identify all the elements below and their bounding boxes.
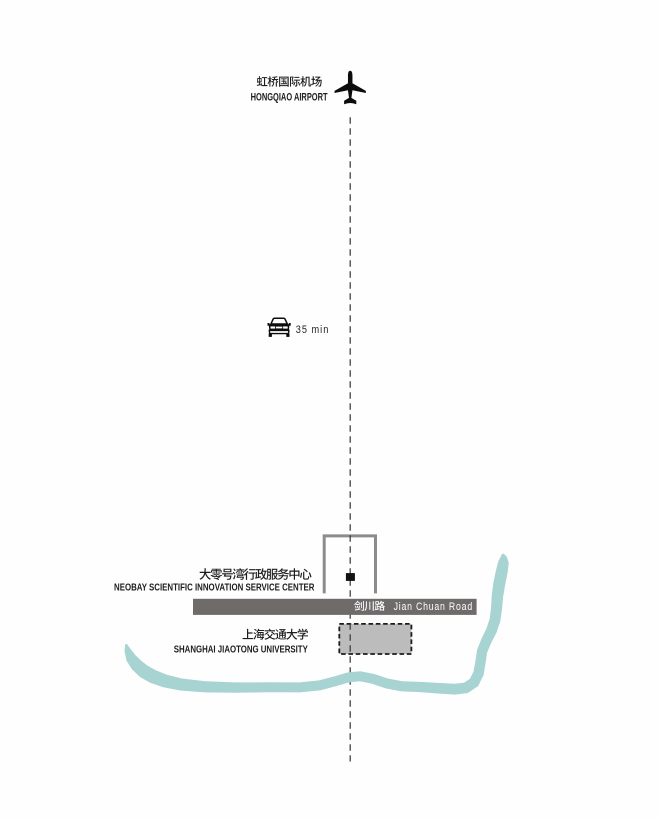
svg-text:SHANGHAI JIAOTONG UNIVERSITY: SHANGHAI JIAOTONG UNIVERSITY <box>174 644 308 655</box>
svg-text:HONGQIAO AIRPORT: HONGQIAO AIRPORT <box>251 92 328 104</box>
svg-text:Jian Chuan Road: Jian Chuan Road <box>394 601 473 613</box>
svg-text:NEOBAY SCIENTIFIC INNOVATION S: NEOBAY SCIENTIFIC INNOVATION SERVICE CEN… <box>114 583 315 594</box>
svg-text:35 min: 35 min <box>296 324 330 336</box>
